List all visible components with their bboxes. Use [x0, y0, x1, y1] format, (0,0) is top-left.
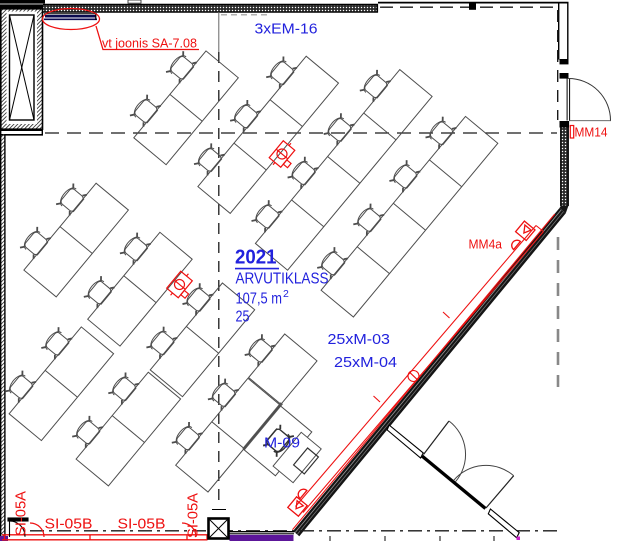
svg-text:3xEM-16: 3xEM-16: [255, 22, 318, 38]
svg-text:vt joonis SA-7.08: vt joonis SA-7.08: [102, 37, 197, 51]
svg-text:SI-05B: SI-05B: [45, 516, 93, 533]
svg-text:2021: 2021: [235, 247, 277, 269]
svg-text:25xM-04: 25xM-04: [334, 355, 397, 371]
svg-text:25: 25: [236, 309, 250, 326]
svg-text:107,5 m: 107,5 m: [236, 291, 283, 308]
svg-text:2: 2: [283, 288, 289, 300]
svg-text:SI-05B: SI-05B: [118, 516, 166, 533]
svg-text:25xM-03: 25xM-03: [328, 332, 391, 348]
svg-text:ARVUTIKLASS: ARVUTIKLASS: [236, 271, 329, 288]
svg-text:MM4a: MM4a: [469, 238, 503, 252]
svg-text:SI-05A: SI-05A: [13, 491, 30, 536]
svg-text:MM14: MM14: [575, 126, 608, 140]
svg-text:M-09: M-09: [264, 436, 300, 452]
svg-text:SI-05A: SI-05A: [185, 493, 202, 538]
